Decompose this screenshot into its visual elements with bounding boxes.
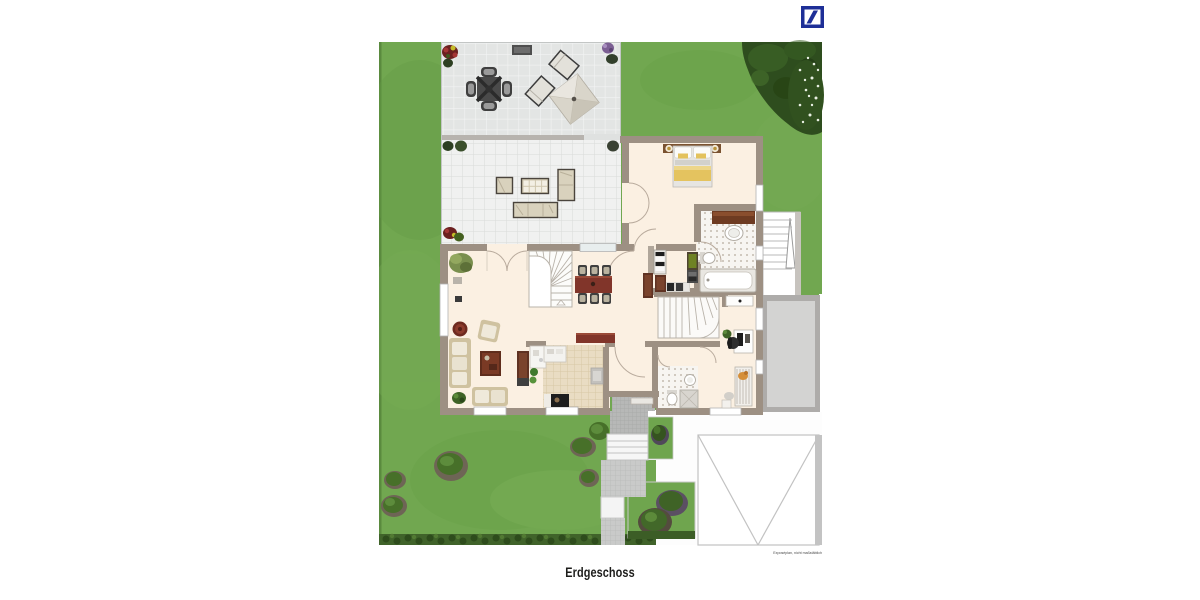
svg-text:Exposéplan, nicht maßstäblich: Exposéplan, nicht maßstäblich <box>773 551 822 555</box>
